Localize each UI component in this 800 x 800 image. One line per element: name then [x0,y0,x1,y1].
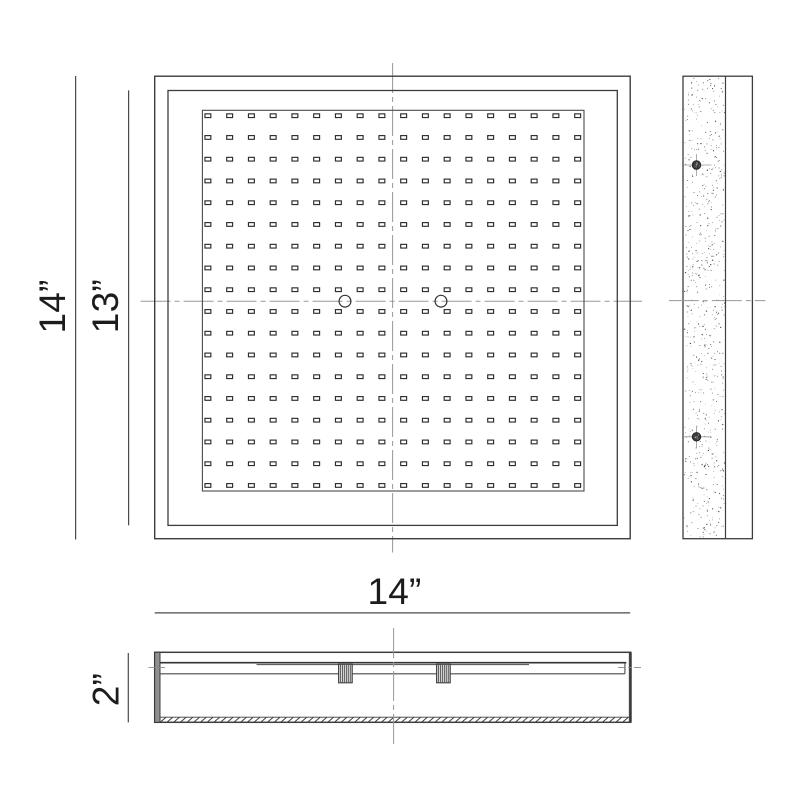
svg-text:13”: 13” [85,279,126,333]
svg-text:14”: 14” [368,571,422,612]
svg-text:14”: 14” [32,279,73,333]
svg-text:2”: 2” [85,673,126,706]
